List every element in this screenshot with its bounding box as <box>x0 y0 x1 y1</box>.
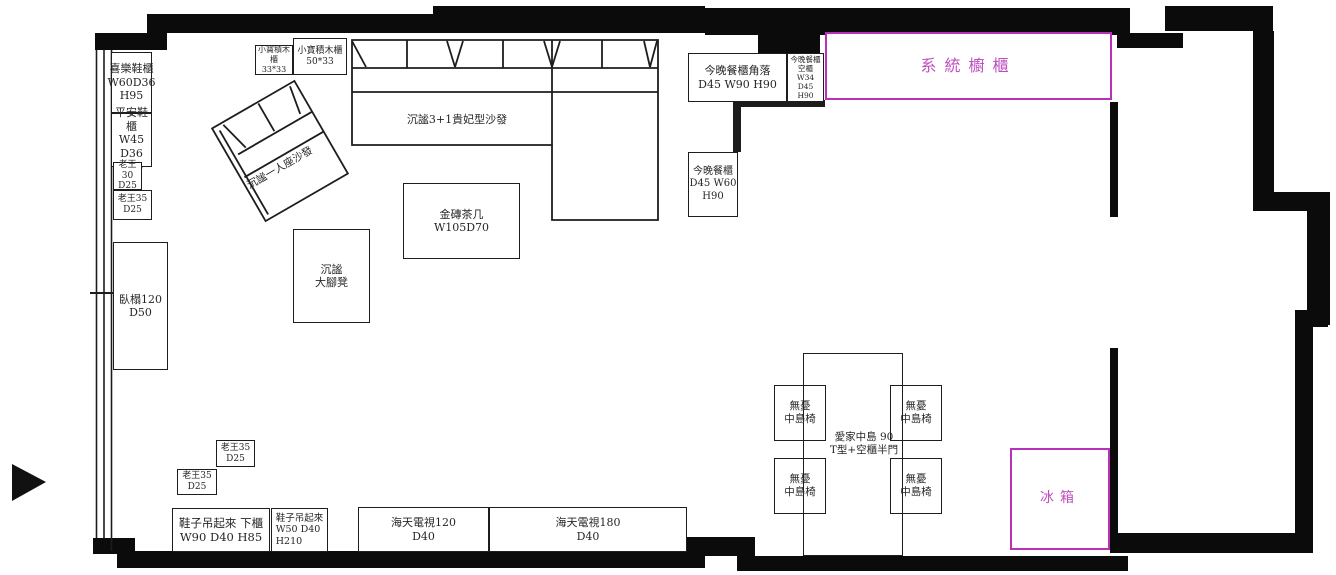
fridge: 冰箱 <box>1010 448 1110 550</box>
island-chair-bottom-right: 無憂 中島椅 <box>890 458 942 514</box>
wall-kitchen-vertical <box>733 100 741 152</box>
sofa-single-outline <box>212 81 348 221</box>
coffee-table: 金磚茶几 W105D70 <box>403 183 520 259</box>
wall-bottom-right <box>737 556 1128 571</box>
wall-top-jog <box>1117 33 1183 48</box>
dining-corner-cabinet: 今晚餐櫃角落 D45 W90 H90 <box>688 53 787 102</box>
shoe-hanging-lower-cabinet: 鞋子吊起來 下櫃 W90 D40 H85 <box>172 508 270 552</box>
xile-shoe-cabinet: 喜樂鞋櫃 W60D36 H95 <box>111 52 152 113</box>
floor-plan: 喜樂鞋櫃 W60D36 H95 平安鞋櫃 W45 D36 H75 老王30 D2… <box>0 0 1336 575</box>
footstool: 沉謐 大腳凳 <box>293 229 370 323</box>
tv-cabinet-120: 海天電視120 D40 <box>358 507 489 552</box>
wall-stub-top-left <box>95 33 167 50</box>
dining-cabinet: 今晚餐櫃 D45 W60 H90 <box>688 152 738 217</box>
wall-bottom-left <box>117 551 705 568</box>
blocks-cabinet-33: 小寶積木櫃 33*33 <box>255 45 293 75</box>
island-chair-bottom-left: 無憂 中島椅 <box>774 458 826 514</box>
shoe-hanging-tall-cabinet: 鞋子吊起來 W50 D40 H210 <box>271 508 328 552</box>
wall-bottom-right-room <box>1118 533 1313 553</box>
wall-top-beam <box>758 8 820 53</box>
sofa-single-label: 沉謐一人座沙發 <box>237 139 323 198</box>
tv-cabinet-180: 海天電視180 D40 <box>489 507 687 552</box>
wall-right-mid <box>1307 211 1330 325</box>
wall-bottom-step <box>687 537 755 556</box>
daybed: 臥榻120 D50 <box>113 242 168 370</box>
wall-right-stub <box>1253 192 1330 211</box>
sofa-31-label: 沉謐3+1貴妃型沙發 <box>362 110 552 130</box>
wall-right-lower <box>1295 327 1313 540</box>
wall-top-mid <box>433 6 705 33</box>
laowang35-cabinet-left: 老王35 D25 <box>113 190 152 220</box>
laowang35-cabinet-b2: 老王35 D25 <box>177 469 217 495</box>
wall-thin-lower <box>1110 348 1118 553</box>
blocks-cabinet-50: 小寶積木櫃 50*33 <box>293 38 347 75</box>
entry-arrow-icon <box>12 464 46 501</box>
laowang30-cabinet: 老王30 D25 <box>113 162 142 190</box>
wall-top-far-right <box>1165 6 1273 31</box>
laowang35-cabinet-b1: 老王35 D25 <box>216 440 255 467</box>
system-cabinet: 系統櫥櫃 <box>825 32 1112 100</box>
wall-right-upper <box>1253 31 1274 192</box>
wall-right-jog <box>1295 310 1328 327</box>
dining-empty-cabinet: 今晚餐櫃 空櫃 W34 D45 H90 <box>787 53 824 102</box>
island-label: 愛家中島 90 T型+空櫃半門 <box>818 430 910 458</box>
wall-top-left <box>147 14 433 33</box>
wall-thin-upper <box>1110 102 1118 217</box>
